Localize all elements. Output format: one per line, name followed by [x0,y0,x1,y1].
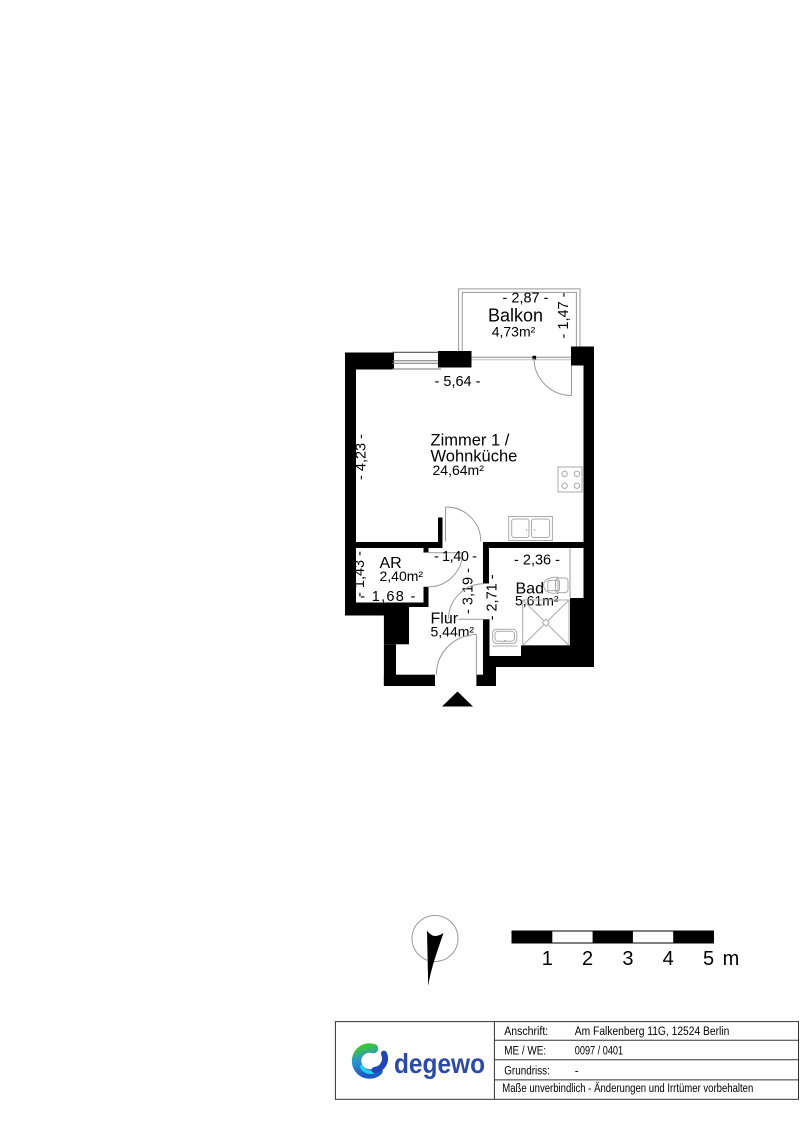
svg-text:24,64m²: 24,64m² [433,462,485,478]
svg-text:5: 5 [703,948,714,970]
svg-text:2: 2 [582,948,593,970]
svg-text:4: 4 [663,948,674,970]
svg-text:4,73m²: 4,73m² [492,324,536,340]
svg-text:degewo: degewo [394,1048,485,1079]
svg-text:m: m [723,948,740,970]
svg-text:- 1,47 -: - 1,47 - [556,292,572,338]
svg-text:- 2,71 -: - 2,71 - [485,574,501,620]
svg-text:- 5,64 -: - 5,64 - [435,374,481,390]
svg-text:- 4,23 -: - 4,23 - [354,434,370,480]
svg-text:-: - [575,1065,579,1077]
svg-text:- 2,36 -: - 2,36 - [514,553,560,569]
svg-text:3: 3 [622,948,633,970]
svg-text:Am Falkenberg 11G, 12524 Berli: Am Falkenberg 11G, 12524 Berlin [575,1026,730,1038]
svg-text:ME / WE:: ME / WE: [504,1046,546,1058]
svg-text:Grundriss:: Grundriss: [504,1065,550,1077]
svg-text:1: 1 [542,948,553,970]
svg-text:5,44m²: 5,44m² [431,624,475,640]
svg-text:2,40m²: 2,40m² [380,568,424,584]
svg-text:- 2,87 -: - 2,87 - [503,291,549,307]
svg-text:- 1,40 -: - 1,40 - [434,549,477,565]
svg-text:Maße unverbindlich - Änderunge: Maße unverbindlich - Änderungen und Irrt… [502,1083,753,1095]
svg-text:Balkon: Balkon [488,306,543,326]
svg-text:0097 / 0401: 0097 / 0401 [575,1046,623,1058]
svg-text:Anschrift:: Anschrift: [504,1026,548,1038]
